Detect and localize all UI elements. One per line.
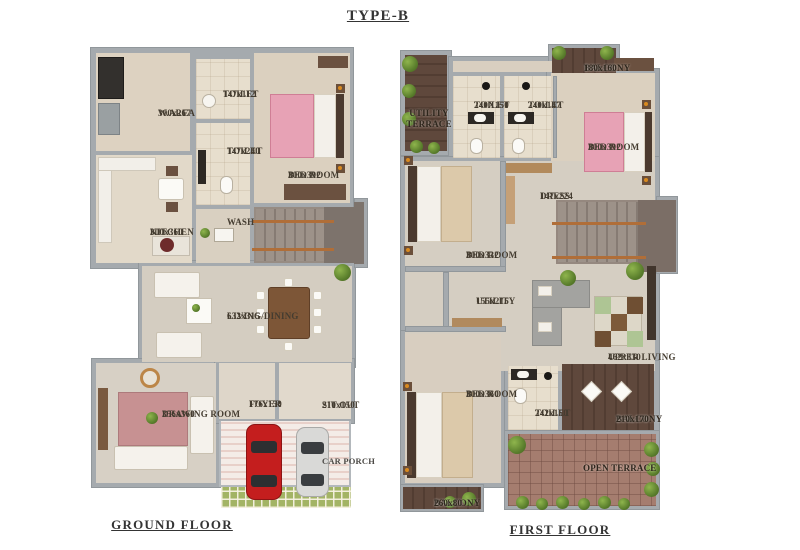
rug-check (595, 331, 611, 347)
nightstand (336, 84, 345, 93)
plant (560, 270, 576, 286)
first-floor-title: FIRST FLOOR (510, 522, 611, 538)
bed-headboard (408, 166, 417, 242)
ground-floor-title: GROUND FLOOR (111, 517, 233, 533)
plant (516, 496, 529, 509)
toilet-bowl-icon (512, 138, 525, 154)
closet (506, 163, 552, 173)
nightstand (403, 382, 412, 391)
sofa-cushion (538, 286, 552, 296)
plant (200, 228, 210, 238)
plant (428, 142, 440, 154)
sink-icon (514, 114, 526, 122)
shower-icon (482, 82, 490, 90)
stairs (558, 202, 638, 262)
rug-check (611, 314, 627, 331)
wall-segment (405, 266, 506, 272)
nightstand (403, 466, 412, 475)
shower-icon (544, 372, 552, 380)
plant (410, 140, 423, 153)
stair-railing (552, 256, 646, 259)
closet (452, 318, 502, 327)
floorplan-sheet: TYPE-B (0, 0, 800, 550)
bed-blanket (442, 392, 473, 478)
plant (146, 412, 158, 424)
plant (618, 498, 630, 510)
plant (402, 56, 418, 72)
bed-pillows (417, 166, 441, 242)
sheet-title: TYPE-B (347, 8, 409, 25)
shower-icon (522, 82, 530, 90)
plant (402, 84, 416, 98)
sofa-cushion (538, 322, 552, 332)
bed (407, 392, 473, 478)
plant (598, 496, 611, 509)
wall-segment (553, 76, 557, 158)
bed-pillows (416, 392, 442, 478)
rug (594, 296, 642, 346)
plant (508, 436, 526, 454)
first-floor-plan: UTILITY TERRACE TOILET240X150 TOILET240x… (0, 0, 800, 550)
wall-segment (443, 272, 449, 332)
hall-floor (453, 61, 553, 72)
red-car (246, 424, 282, 500)
rug-check (595, 297, 611, 314)
plant (192, 304, 200, 312)
plant (556, 496, 569, 509)
nightstand (404, 246, 413, 255)
plant (334, 264, 351, 281)
nightstand (642, 176, 651, 185)
stair-railing (252, 220, 334, 223)
plant (600, 46, 614, 60)
sink-icon (517, 371, 529, 378)
nightstand (642, 100, 651, 109)
bed-blanket (441, 166, 472, 242)
plant (644, 482, 659, 497)
rug-check (627, 331, 643, 347)
stair-railing (252, 248, 334, 251)
tv-unit (647, 266, 656, 340)
bed-headboard (645, 112, 652, 172)
plant (644, 442, 659, 457)
plant (626, 262, 644, 280)
stair-landing (638, 200, 676, 272)
rug-check (627, 297, 643, 314)
sink-icon (474, 114, 486, 122)
plant (552, 46, 566, 60)
nightstand (404, 156, 413, 165)
bed (408, 166, 472, 242)
closet (506, 176, 515, 224)
plant (578, 498, 590, 510)
stair-railing (552, 222, 646, 225)
plant (536, 498, 548, 510)
toilet-bowl-icon (470, 138, 483, 154)
